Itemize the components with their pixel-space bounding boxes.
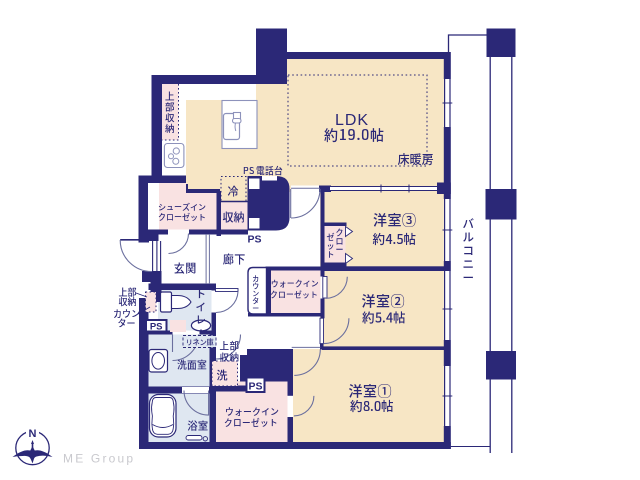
- svg-text:PS: PS: [150, 322, 163, 333]
- svg-text:PS: PS: [247, 234, 261, 246]
- svg-text:LDK: LDK: [335, 112, 369, 129]
- svg-text:PS: PS: [248, 381, 262, 393]
- svg-text:ME Group: ME Group: [63, 452, 135, 466]
- svg-text:N: N: [29, 428, 37, 440]
